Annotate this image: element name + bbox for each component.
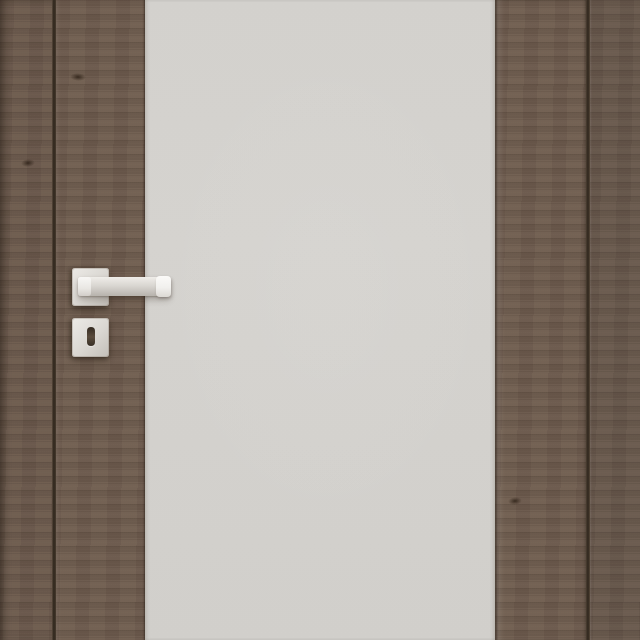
door-product-photo [0, 0, 640, 640]
handle-neck [78, 277, 91, 296]
door-stile-right [495, 0, 586, 640]
keyhole-plate [72, 318, 109, 357]
handle-end-cap [156, 276, 171, 297]
frosted-glass-panel [145, 0, 495, 640]
door-handle-lever [78, 277, 170, 296]
door-frame-right [590, 0, 640, 640]
door-frame-left [0, 0, 52, 640]
keyhole-slot [87, 327, 95, 346]
